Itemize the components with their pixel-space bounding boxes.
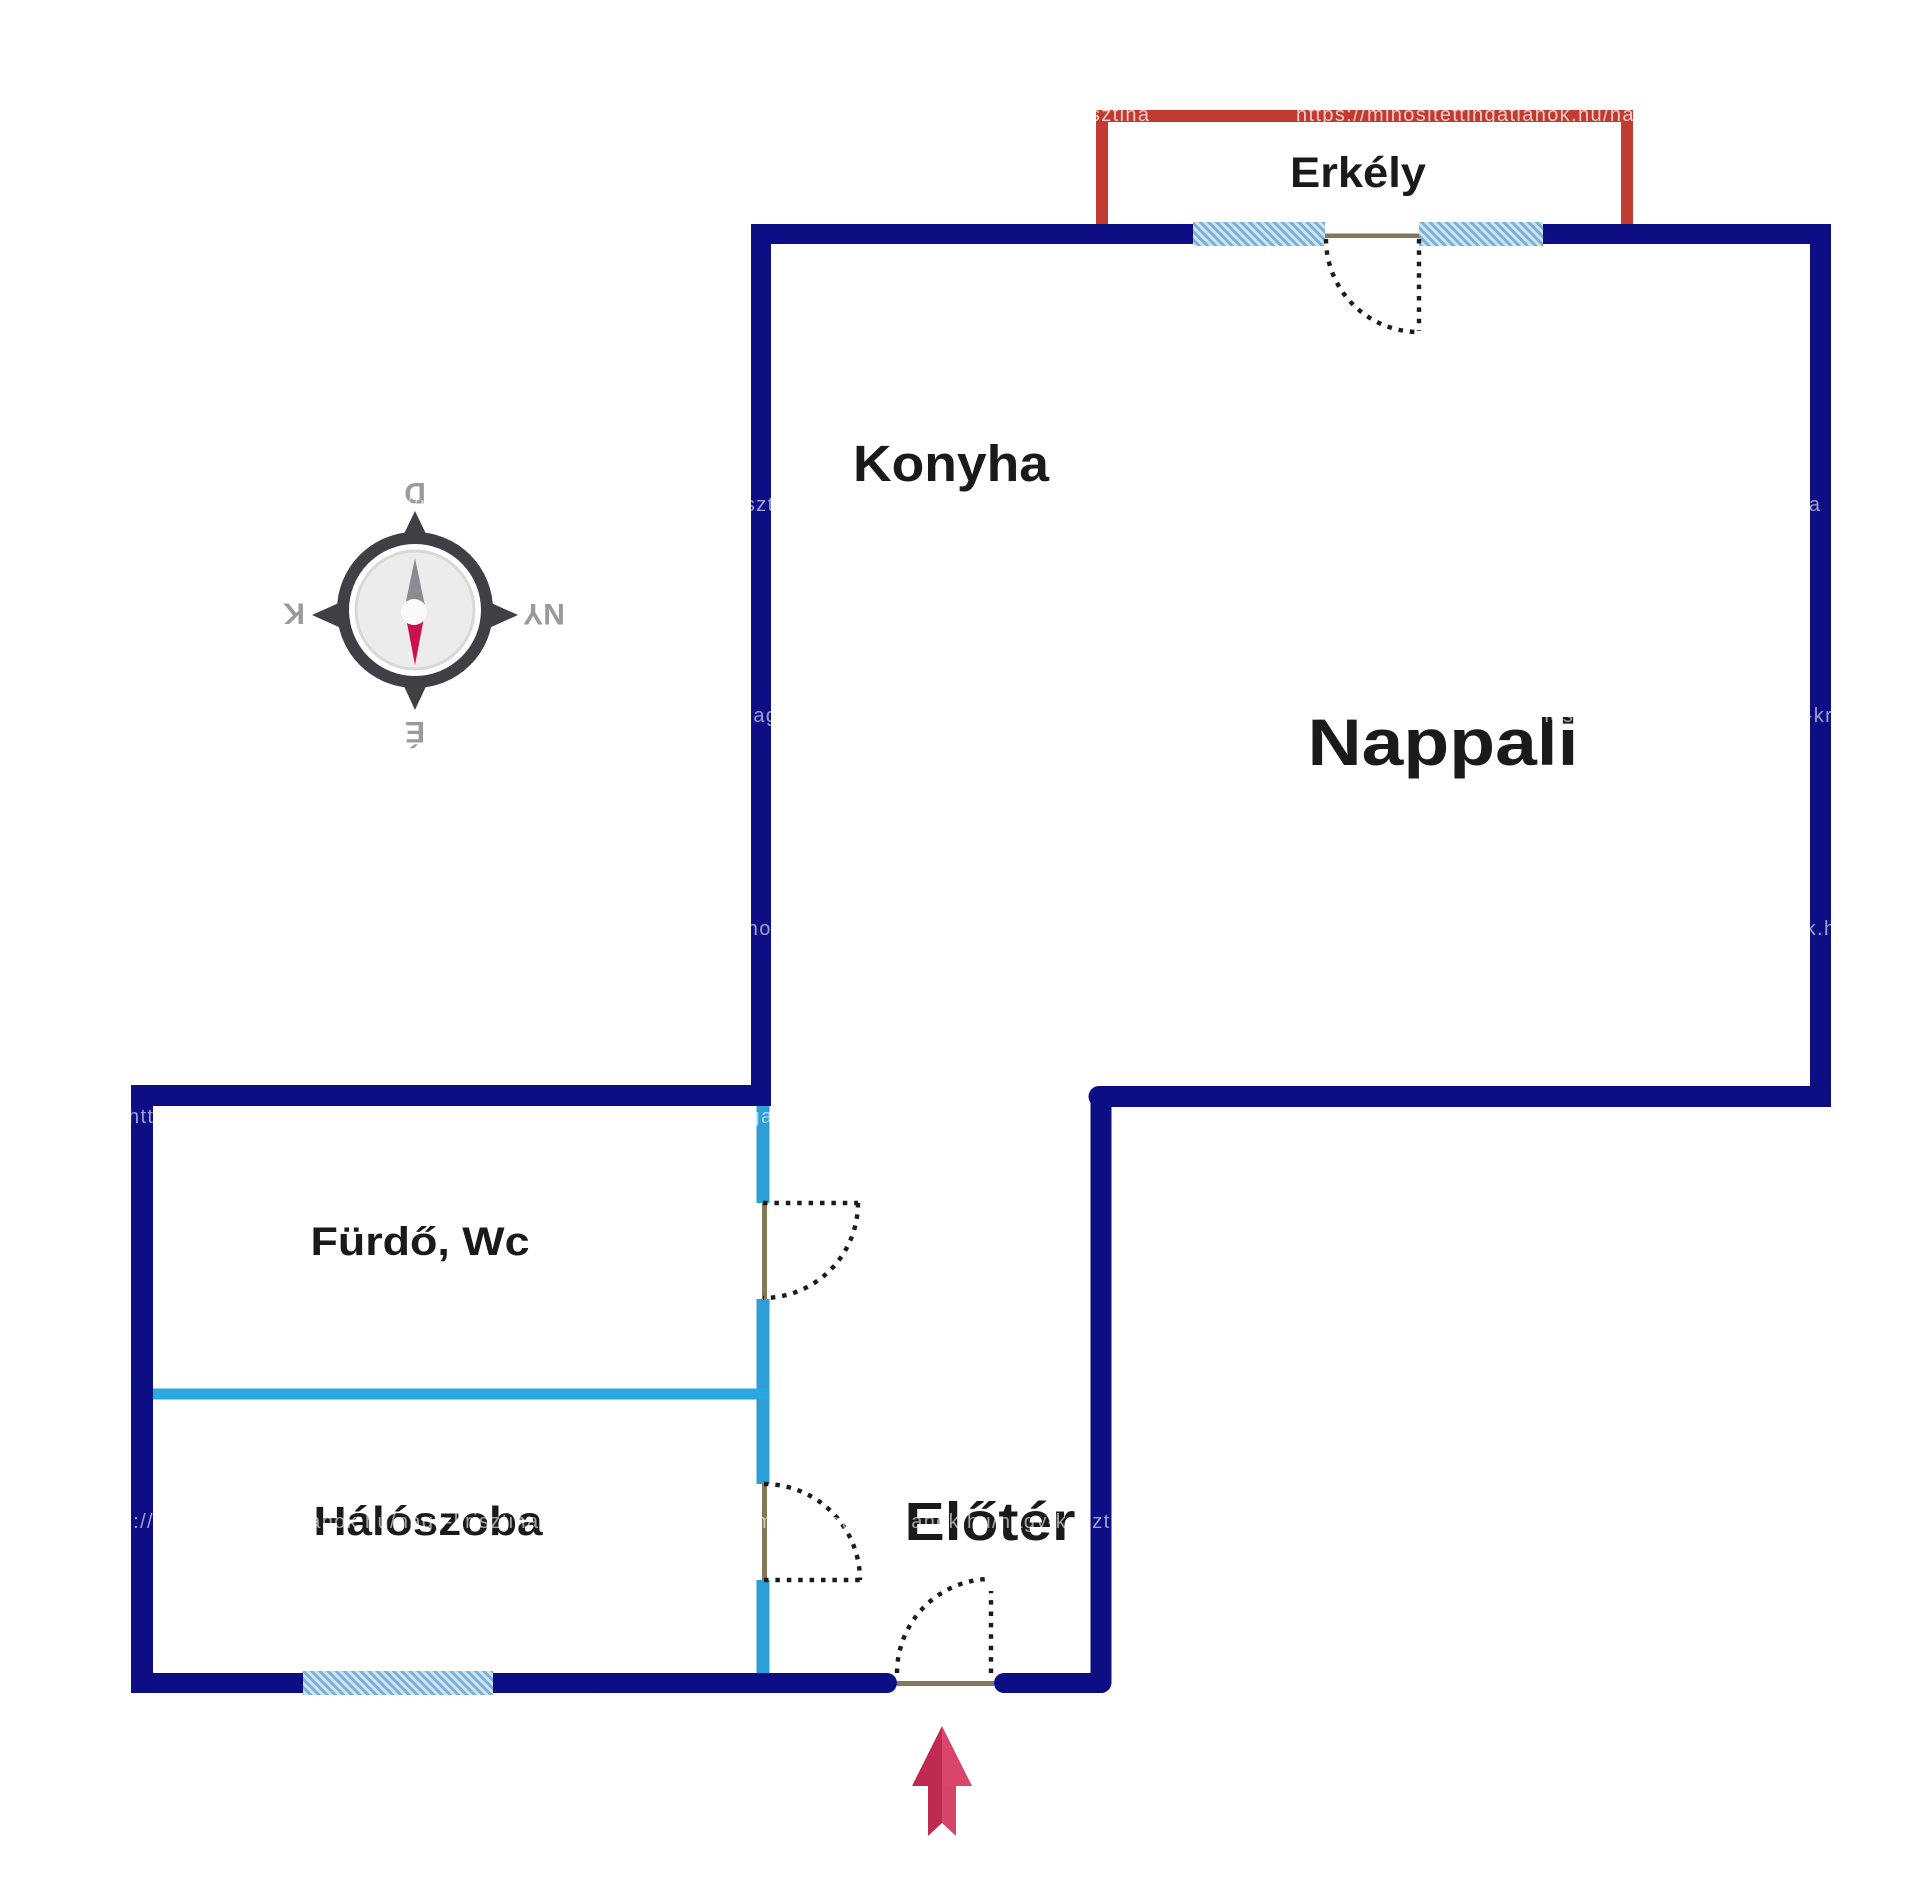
svg-text:Fürdő, Wc: Fürdő, Wc — [311, 1220, 530, 1264]
svg-text:https://minositettingatlanok.h: https://minositettingatlanok.hu/nagy-kri… — [1365, 494, 1821, 516]
svg-text:https://minositettingatlanok.h: https://minositettingatlanok.hu/nagy-kri… — [1542, 918, 1920, 940]
svg-text:É: É — [405, 715, 425, 749]
svg-text:https://minositettingatlanok.h: https://minositettingatlanok.hu/nagy-kri… — [0, 494, 203, 516]
svg-text:https://minositettingatlanok.h: https://minositettingatlanok.hu/nagy-kri… — [1162, 1106, 1618, 1128]
svg-text:K: K — [283, 597, 305, 630]
svg-text:NY: NY — [523, 597, 565, 630]
svg-text:https://minositettingatlanok.h: https://minositettingatlanok.hu/nagy-kri… — [685, 1511, 1141, 1533]
svg-text:https://minositettingatlanok.h: https://minositettingatlanok.hu/nagy-kri… — [0, 918, 362, 940]
svg-text:https://minositettingatlanok.h: https://minositettingatlanok.hu/nagy-kri… — [427, 705, 883, 727]
svg-text:https://minositettingatlanok.h: https://minositettingatlanok.hu/nagy-kri… — [128, 1106, 584, 1128]
svg-text:Konyha: Konyha — [853, 435, 1050, 492]
svg-text:https://minositettingatlanok.h: https://minositettingatlanok.hu/nagy-kri… — [1287, 1511, 1743, 1533]
svg-text:https://minositettingatlanok.h: https://minositettingatlanok.hu/nagy-kri… — [560, 1106, 1016, 1128]
svg-text:https://minositettingatlanok.h: https://minositettingatlanok.hu/nagy-kri… — [694, 104, 1150, 126]
svg-text:https://minositettingatlanok.h: https://minositettingatlanok.hu/nagy-kri… — [349, 494, 805, 516]
svg-text:https://minositettingatlanok.h: https://minositettingatlanok.hu/nagy-kri… — [0, 705, 281, 727]
svg-text:https://minositettingatlanok.h: https://minositettingatlanok.hu/nagy-kri… — [1443, 705, 1899, 727]
svg-text:https://minositettingatlanok.h: https://minositettingatlanok.hu/nagy-kri… — [92, 104, 548, 126]
svg-text:https://minositettingatlanok.h: https://minositettingatlanok.hu/nagy-kri… — [508, 918, 964, 940]
svg-text:https://minositettingatlanok.h: https://minositettingatlanok.hu/nagy-kri… — [83, 1511, 539, 1533]
svg-text:Erkély: Erkély — [1290, 149, 1426, 197]
svg-text:https://minositettingatlanok.h: https://minositettingatlanok.hu/nagy-kri… — [1296, 104, 1752, 126]
